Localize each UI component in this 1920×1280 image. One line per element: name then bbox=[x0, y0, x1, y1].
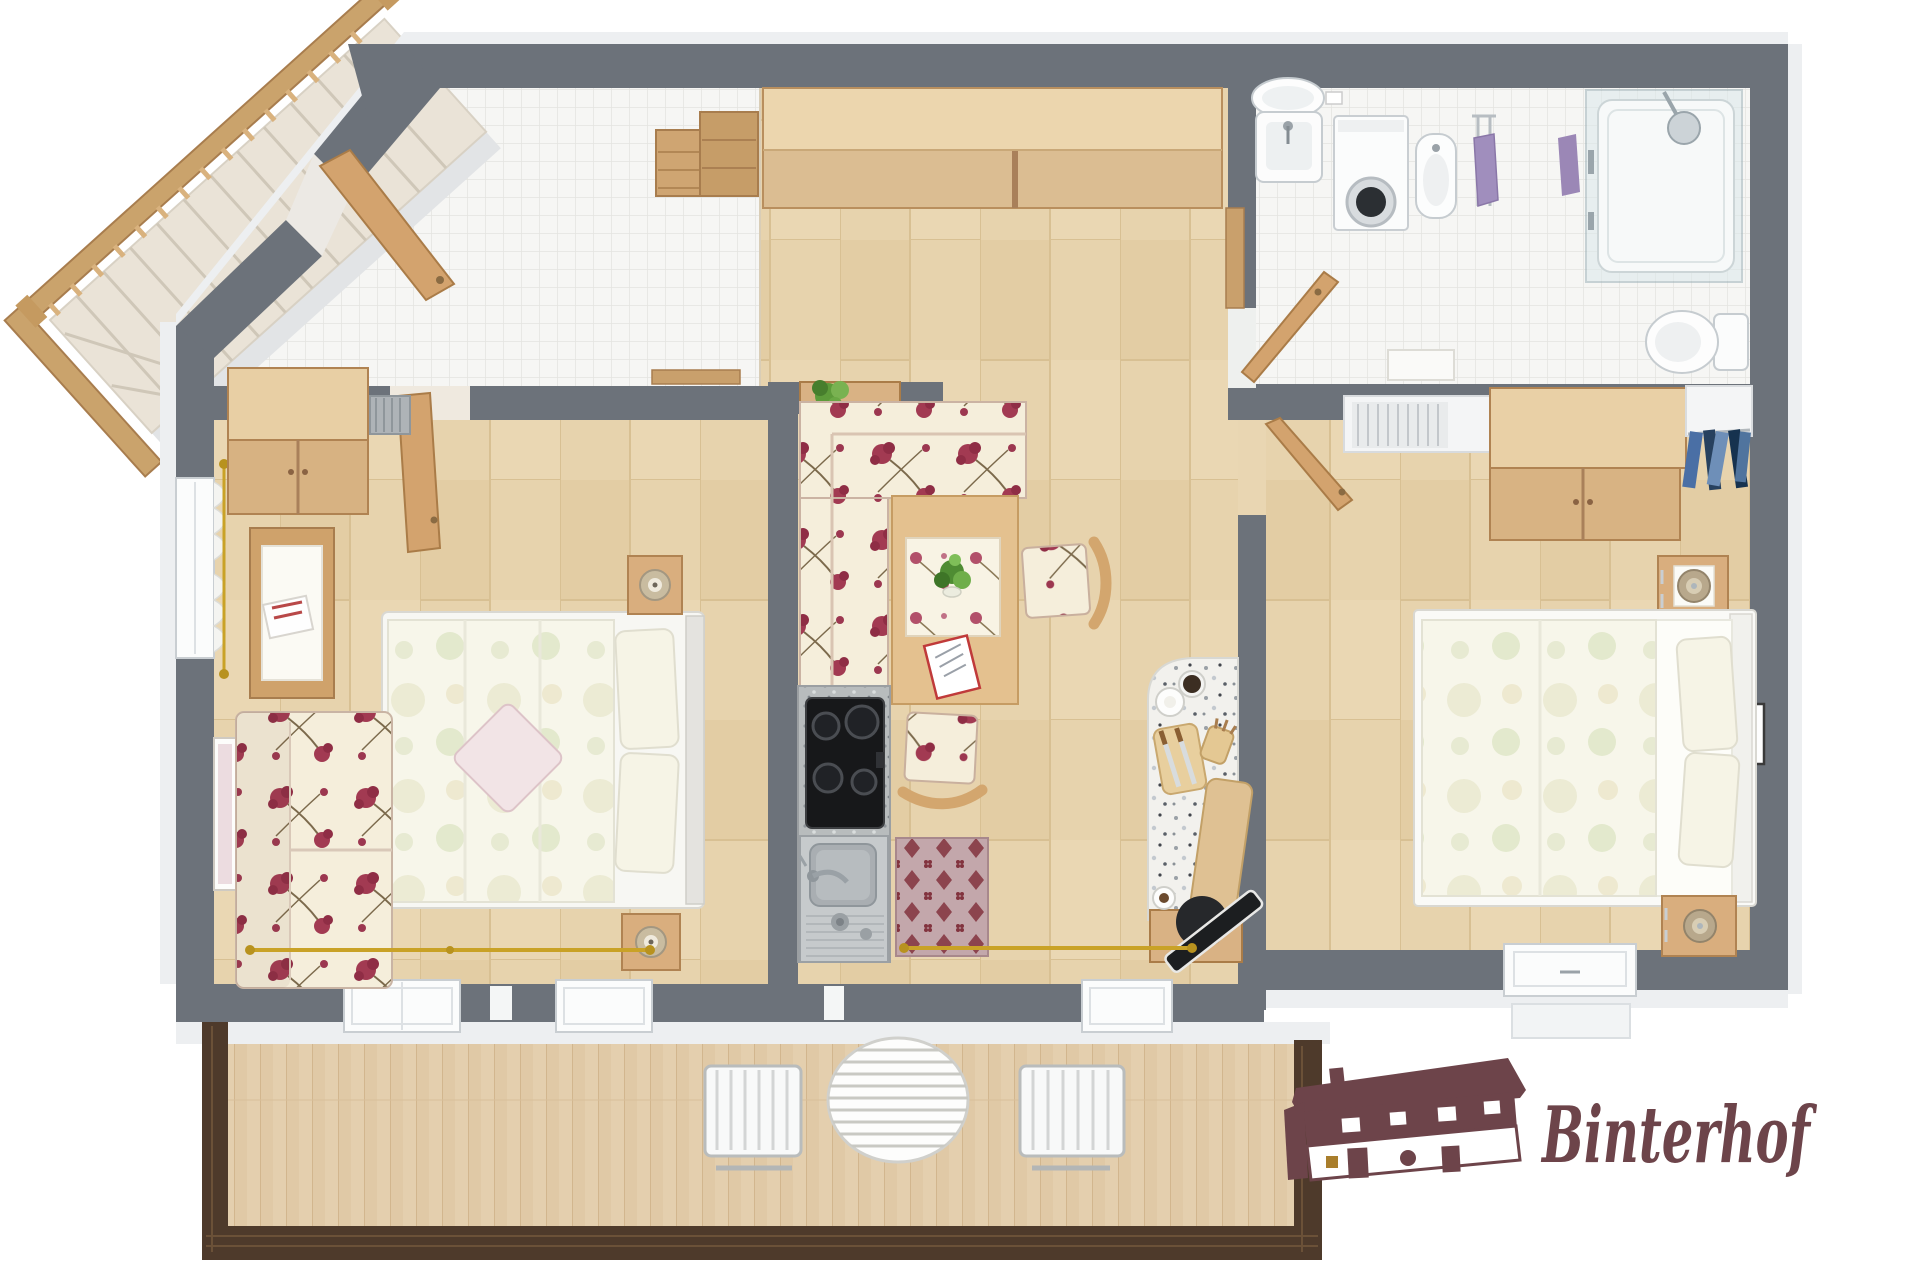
pedestal-sink bbox=[1252, 78, 1324, 182]
wall-bedroom-left-living bbox=[768, 386, 798, 1010]
logo-text: Binterhof bbox=[1541, 1090, 1818, 1181]
wall-pier bbox=[824, 986, 844, 1020]
door-handle bbox=[436, 276, 444, 284]
shower-head bbox=[1668, 112, 1700, 144]
door-handle bbox=[1339, 489, 1346, 496]
door-handle bbox=[1315, 289, 1322, 296]
sofa-backrest bbox=[236, 712, 290, 988]
pillow bbox=[1676, 636, 1738, 751]
french-window bbox=[1082, 980, 1172, 1032]
purple-towel bbox=[1474, 134, 1498, 206]
washing-machine bbox=[1334, 116, 1408, 230]
bidet bbox=[1416, 134, 1456, 218]
pillow bbox=[615, 753, 679, 874]
rod-finial bbox=[219, 669, 229, 679]
exterior-wall-face bbox=[1788, 44, 1802, 994]
kitchenette bbox=[798, 686, 890, 962]
dining-table bbox=[892, 496, 1018, 704]
wall-switch bbox=[1326, 92, 1342, 104]
bedroom-right-window bbox=[1504, 944, 1636, 1038]
headboard bbox=[686, 616, 704, 904]
door-handle bbox=[431, 517, 438, 524]
wood-trim bbox=[1226, 208, 1244, 308]
exterior-wall-face bbox=[404, 32, 1788, 44]
shower-handle bbox=[1588, 150, 1594, 174]
wardrobe bbox=[1490, 388, 1686, 540]
wardrobe bbox=[228, 368, 368, 514]
pillow bbox=[615, 629, 679, 750]
cooktop bbox=[806, 698, 884, 828]
kitchen-sink bbox=[800, 836, 888, 962]
floor-plan-page: Binterhof bbox=[0, 0, 1920, 1280]
french-window bbox=[556, 980, 652, 1032]
balcony bbox=[176, 1022, 1330, 1260]
radiator-grille bbox=[1352, 402, 1448, 448]
nightstand-with-lamp bbox=[1662, 896, 1736, 956]
bath-mat bbox=[1388, 350, 1454, 380]
exterior-wall-face bbox=[160, 322, 176, 984]
bedroom-left-wall-picture bbox=[214, 738, 236, 890]
slatted-chair bbox=[705, 1066, 801, 1168]
pillow bbox=[1678, 752, 1740, 867]
wall-pier bbox=[490, 986, 512, 1020]
double-bed bbox=[1414, 610, 1756, 906]
toilet-tank bbox=[1714, 314, 1748, 370]
nightstand-with-lamp bbox=[622, 914, 680, 970]
toilet bbox=[1646, 311, 1748, 373]
nightstand-with-lamp bbox=[628, 556, 682, 614]
shower-tray bbox=[1598, 100, 1734, 272]
radiator bbox=[370, 396, 410, 434]
side-table-with-magazines bbox=[250, 528, 334, 698]
logo: Binterhof bbox=[1284, 1058, 1817, 1181]
wardrobe-divider bbox=[1012, 150, 1018, 208]
closet-shelf bbox=[1686, 386, 1752, 436]
bedroom-right-threshold bbox=[1238, 420, 1266, 515]
wall-top bbox=[404, 44, 1788, 88]
floral-sofa bbox=[236, 712, 392, 988]
floor-plan-rendering: Binterhof bbox=[0, 0, 1920, 1280]
slatted-chair bbox=[1020, 1066, 1124, 1168]
shoe-rack bbox=[652, 370, 740, 384]
patterned-rug bbox=[896, 838, 988, 956]
double-bed bbox=[382, 612, 704, 908]
shower-enclosure bbox=[1586, 90, 1742, 282]
lit-window bbox=[1326, 1156, 1338, 1168]
double-wardrobe bbox=[763, 88, 1222, 208]
open-closet-with-clothes bbox=[1682, 386, 1752, 490]
control-panel bbox=[1338, 120, 1404, 132]
